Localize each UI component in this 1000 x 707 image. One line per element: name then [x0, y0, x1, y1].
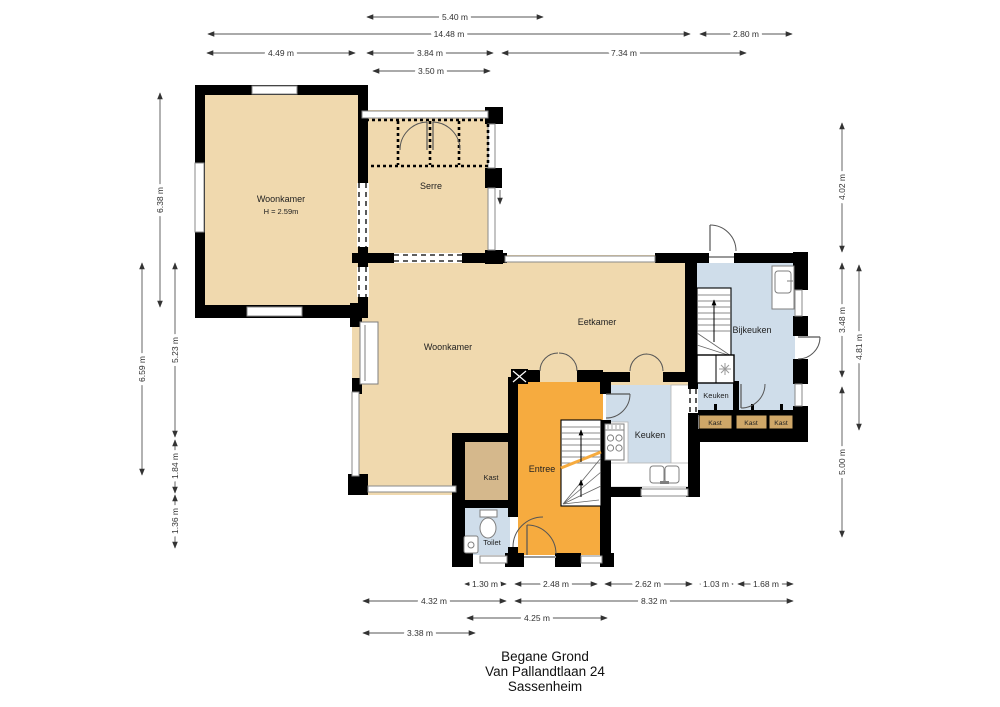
stairs-entree	[561, 420, 601, 506]
dim-bottom-168: 1.68 m	[753, 579, 779, 589]
dimensions-right: 4.02 m 3.48 m 4.81 m 5.00 m	[837, 123, 864, 537]
toilet-icon	[480, 510, 497, 538]
floorplan-drawing: Woonkamer H = 2.59m Serre Woonkamer Eetk…	[0, 0, 1000, 707]
dim-bottom-262: 2.62 m	[635, 579, 661, 589]
plan-title-floor: Begane Grond	[501, 649, 589, 664]
dim-bottom-425: 4.25 m	[524, 613, 550, 623]
plan-title: Begane Grond Van Pallandtlaan 24 Sassenh…	[485, 649, 605, 694]
keuken-label: Keuken	[635, 430, 666, 440]
entree-label: Entree	[529, 464, 556, 474]
stairs-bijkeuken	[697, 288, 731, 356]
toilet-label: Toilet	[483, 538, 501, 547]
meter-box-icon	[511, 369, 528, 384]
dimensions-bottom: 1.30 m 2.48 m 2.62 m 1.03 m 1.68 m 4.32 …	[363, 579, 793, 638]
eetkamer-label: Eetkamer	[578, 317, 617, 327]
dim-left-184: 1.84 m	[170, 453, 180, 479]
kast-label: Kast	[483, 473, 499, 482]
dim-top-280: 2.80 m	[733, 29, 759, 39]
dim-top-1448: 14.48 m	[434, 29, 465, 39]
floorplan-page: Woonkamer H = 2.59m Serre Woonkamer Eetk…	[0, 0, 1000, 707]
utility-sink-icon	[772, 266, 794, 309]
dim-top-540: 5.40 m	[442, 12, 468, 22]
woonkamer-nw-ceiling-label: H = 2.59m	[264, 207, 299, 216]
fireplace-icon	[360, 322, 378, 384]
dim-left-136: 1.36 m	[170, 508, 180, 534]
dim-right-481: 4.81 m	[854, 334, 864, 360]
dim-top-384: 3.84 m	[417, 48, 443, 58]
woonkamer-label: Woonkamer	[424, 342, 472, 352]
dim-bottom-432: 4.32 m	[421, 596, 447, 606]
dim-top-734: 7.34 m	[611, 48, 637, 58]
dim-left-659: 6.59 m	[137, 356, 147, 382]
plan-title-address: Van Pallandtlaan 24	[485, 664, 605, 679]
dimensions-left: 6.38 m 6.59 m 5.23 m 1.84 m 1.36 m	[137, 93, 180, 548]
keuken-klein-label: Keuken	[703, 391, 728, 400]
dim-right-500: 5.00 m	[837, 449, 847, 475]
dim-right-348: 3.48 m	[837, 307, 847, 333]
dim-top-449: 4.49 m	[268, 48, 294, 58]
stove-icon	[605, 424, 624, 460]
kast-box-middle-label: Kast	[744, 420, 758, 427]
dim-bottom-103: 1.03 m	[703, 579, 729, 589]
dim-right-402: 4.02 m	[837, 174, 847, 200]
dimensions-top: 5.40 m 14.48 m 2.80 m 4.49 m 3.84 m 7.34…	[207, 12, 792, 76]
dim-left-638: 6.38 m	[155, 187, 165, 213]
serre-label: Serre	[420, 181, 442, 191]
plan-title-city: Sassenheim	[508, 679, 582, 694]
kast-box-right-label: Kast	[774, 420, 788, 427]
bijkeuken-label: Bijkeuken	[732, 325, 771, 335]
dim-bottom-130: 1.30 m	[472, 579, 498, 589]
dim-left-523: 5.23 m	[170, 337, 180, 363]
woonkamer-nw-label: Woonkamer	[257, 194, 305, 204]
dim-bottom-338: 3.38 m	[407, 628, 433, 638]
dim-top-350: 3.50 m	[418, 66, 444, 76]
dim-bottom-832: 8.32 m	[641, 596, 667, 606]
ventilation-unit-icon	[697, 355, 734, 383]
dim-bottom-248: 2.48 m	[543, 579, 569, 589]
kast-box-left-label: Kast	[708, 420, 722, 427]
washbasin-icon	[464, 536, 478, 553]
